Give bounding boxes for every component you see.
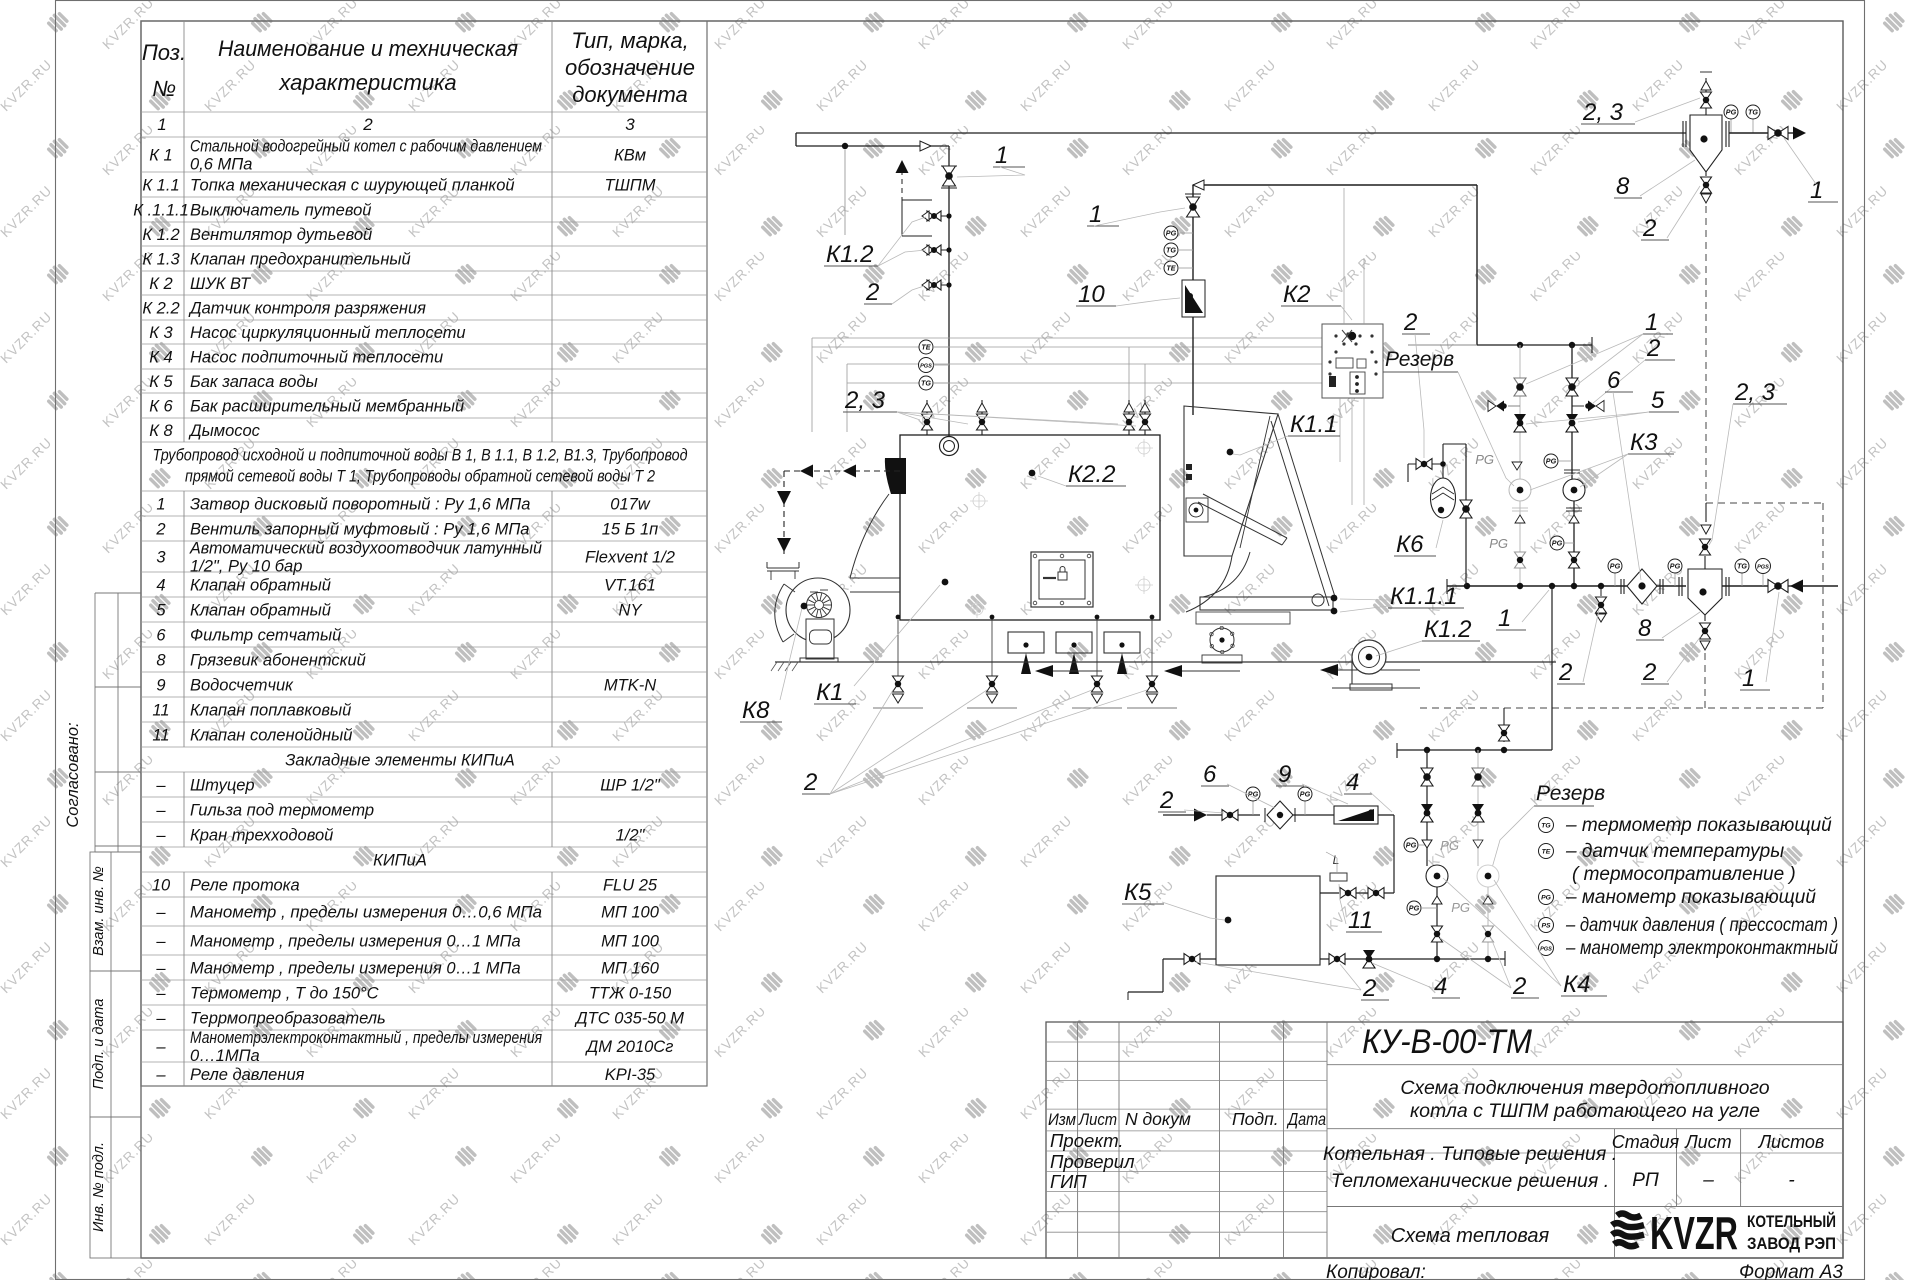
svg-text:PGS: PGS	[1540, 947, 1552, 953]
svg-text:Формат А3: Формат А3	[1739, 1262, 1843, 1280]
svg-text:Гильза под термометр: Гильза под термометр	[190, 802, 374, 820]
svg-text:Клапан поплавковый: Клапан поплавковый	[190, 702, 351, 720]
svg-text:К .1.1.1: К .1.1.1	[133, 202, 189, 220]
svg-text:– манометр показывающий: – манометр показывающий	[1565, 887, 1816, 908]
svg-text:Термометр , Т до 150°С: Термометр , Т до 150°С	[190, 985, 379, 1003]
svg-text:Клапан предохранительный: Клапан предохранительный	[190, 251, 411, 269]
svg-text:Клапан обратный: Клапан обратный	[190, 577, 331, 595]
svg-text:2: 2	[1362, 975, 1376, 1002]
svg-text:Резерв: Резерв	[1536, 782, 1605, 805]
svg-text:Затвор дисковый поворотный :: Затвор дисковый поворотный : Ру 1,6 МПа	[190, 496, 530, 514]
svg-text:ШР 1/2": ШР 1/2"	[600, 777, 661, 795]
svg-text:КУ-В-00-ТМ: КУ-В-00-ТМ	[1362, 1023, 1533, 1061]
svg-text:К 5: К 5	[149, 373, 173, 391]
svg-text:–: –	[155, 1010, 166, 1028]
svg-text:TE: TE	[1542, 849, 1551, 856]
svg-text:Дата: Дата	[1286, 1109, 1326, 1129]
svg-text:Манометр , пределы измерения: Манометр , пределы измерения 0…1 МПа	[190, 960, 521, 978]
svg-text:ГИП: ГИП	[1050, 1171, 1087, 1192]
svg-text:TG: TG	[1166, 246, 1176, 255]
svg-text:L: L	[1333, 853, 1340, 867]
svg-text:4: 4	[156, 577, 165, 595]
svg-text:Взам. инв. №: Взам. инв. №	[91, 866, 107, 956]
svg-text:PG: PG	[1440, 838, 1459, 853]
svg-text:Стадия: Стадия	[1612, 1132, 1680, 1152]
svg-text:8: 8	[156, 652, 166, 670]
svg-text:К1.1: К1.1	[1290, 411, 1338, 438]
svg-text:Flexvent 1/2: Flexvent 1/2	[585, 549, 675, 567]
svg-text:PG: PG	[1489, 536, 1508, 551]
svg-text:2: 2	[1642, 215, 1656, 242]
svg-text:PS: PS	[1541, 923, 1551, 930]
svg-text:N докум: N докум	[1125, 1109, 1191, 1129]
svg-text:11: 11	[152, 702, 169, 720]
svg-text:1: 1	[1089, 201, 1102, 228]
svg-text:Копировал:: Копировал:	[1326, 1262, 1426, 1280]
svg-text:Трубопровод исходной и подпито: Трубопровод исходной и подпиточной воды …	[153, 447, 688, 465]
svg-text:К1.1.1: К1.1.1	[1390, 583, 1458, 610]
svg-text:Вентиль запорный муфтовый : Р: Вентиль запорный муфтовый : Ру 1,6 МПа	[190, 521, 529, 539]
svg-text:Наименование и техническая: Наименование и техническая	[218, 36, 518, 61]
svg-text:10: 10	[152, 877, 171, 895]
svg-text:КИПиА: КИПиА	[373, 852, 427, 870]
svg-text:Кран трехходовой: Кран трехходовой	[190, 827, 333, 845]
svg-text:Фильтр сетчатый: Фильтр сетчатый	[190, 627, 341, 645]
svg-text:–: –	[155, 802, 166, 820]
svg-text:характеристика: характеристика	[278, 70, 456, 95]
svg-text:Дымосос: Дымосос	[188, 422, 261, 440]
svg-text:Тип, марка,: Тип, марка,	[571, 28, 689, 53]
svg-text:VT.161: VT.161	[604, 577, 656, 595]
svg-text:К 2: К 2	[149, 275, 173, 293]
svg-text:Выключатель путевой: Выключатель путевой	[190, 202, 371, 220]
svg-text:1/2": 1/2"	[616, 827, 646, 845]
svg-text:KVZR: KVZR	[1650, 1207, 1738, 1259]
svg-text:Схема подключения твердотоплив: Схема подключения твердотопливного	[1400, 1077, 1769, 1099]
svg-text:PG: PG	[1541, 895, 1552, 902]
svg-text:2: 2	[1558, 659, 1572, 686]
svg-text:2: 2	[362, 115, 373, 134]
svg-text:К 1.2: К 1.2	[142, 226, 179, 244]
svg-text:ДМ 2010Сг: ДМ 2010Сг	[585, 1038, 674, 1056]
svg-text:Клапан обратный: Клапан обратный	[190, 602, 331, 620]
svg-text:К3: К3	[1630, 429, 1658, 456]
svg-text:2: 2	[1512, 973, 1526, 1000]
svg-text:1: 1	[1498, 605, 1511, 632]
svg-text:Насос подпиточный теплосети: Насос подпиточный теплосети	[190, 349, 443, 367]
svg-text:Закладные элементы КИПиА: Закладные элементы КИПиА	[285, 752, 514, 770]
svg-text:Инв. № подл.: Инв. № подл.	[91, 1142, 107, 1232]
svg-text:Тепломеханические решения .: Тепломеханические решения .	[1331, 1170, 1609, 1192]
svg-text:4: 4	[1434, 973, 1447, 1000]
svg-text:МП 100: МП 100	[601, 904, 660, 922]
svg-text:1: 1	[1810, 177, 1823, 204]
svg-text:2: 2	[865, 279, 879, 306]
svg-text:Подп. и дата: Подп. и дата	[91, 999, 107, 1090]
svg-text:Лист: Лист	[1684, 1132, 1731, 1152]
svg-text:-: -	[1788, 1170, 1794, 1191]
svg-text:Схема тепловая: Схема тепловая	[1391, 1225, 1550, 1247]
svg-text:–: –	[155, 1038, 166, 1056]
svg-text:PG: PG	[1670, 562, 1681, 571]
svg-text:Вентилятор дутьевой: Вентилятор дутьевой	[190, 226, 372, 244]
svg-text:прямой сетевой воды Т 1, Тру: прямой сетевой воды Т 1, Трубопроводы об…	[185, 468, 655, 486]
svg-text:PG: PG	[1552, 539, 1563, 548]
svg-text:PG: PG	[1406, 841, 1417, 850]
svg-text:2, 3: 2, 3	[1734, 379, 1776, 406]
svg-text:1: 1	[1645, 309, 1658, 336]
svg-text:1: 1	[1742, 665, 1755, 692]
svg-text:Стальной водогрейный котел с р: Стальной водогрейный котел с рабочим дав…	[190, 138, 542, 156]
svg-text:Манометр , пределы измерения: Манометр , пределы измерения 0…1 МПа	[190, 933, 521, 951]
svg-text:К1.2: К1.2	[1424, 616, 1472, 643]
svg-text:– манометр электроконтактный: – манометр электроконтактный	[1565, 938, 1838, 959]
svg-text:0,6 МПа: 0,6 МПа	[190, 156, 252, 174]
svg-text:3: 3	[625, 115, 635, 134]
svg-text:4: 4	[1346, 769, 1359, 796]
svg-text:ТТЖ 0-150: ТТЖ 0-150	[589, 985, 672, 1003]
svg-text:МП 160: МП 160	[601, 960, 660, 978]
svg-text:Насос циркуляционный теплосети: Насос циркуляционный теплосети	[190, 324, 466, 342]
svg-text:5: 5	[156, 602, 166, 620]
svg-text:Штуцер: Штуцер	[190, 777, 255, 795]
svg-text:PG: PG	[1610, 562, 1621, 571]
svg-text:обозначение: обозначение	[565, 55, 695, 80]
svg-text:2, 3: 2, 3	[1582, 99, 1624, 126]
svg-text:PG: PG	[1451, 900, 1470, 915]
svg-text:Террмопреобразователь: Террмопреобразователь	[190, 1010, 386, 1028]
svg-text:К 3: К 3	[149, 324, 173, 342]
svg-text:К1.2: К1.2	[826, 241, 874, 268]
svg-text:Реле протока: Реле протока	[190, 877, 300, 895]
svg-text:К 2.2: К 2.2	[142, 300, 179, 318]
svg-text:Подп.: Подп.	[1232, 1109, 1279, 1129]
svg-text:Резерв: Резерв	[1385, 348, 1454, 371]
svg-text:К 6: К 6	[149, 398, 173, 416]
svg-text:Манометрэлектроконтактный , п: Манометрэлектроконтактный , пределы изме…	[190, 1029, 542, 1047]
svg-text:PG: PG	[1300, 790, 1311, 799]
svg-text:Лист: Лист	[1078, 1110, 1117, 1129]
svg-text:1: 1	[995, 142, 1008, 169]
svg-text:017w: 017w	[610, 496, 651, 514]
svg-text:К6: К6	[1396, 531, 1424, 558]
svg-text:–: –	[155, 985, 166, 1003]
svg-text:К1: К1	[816, 679, 844, 706]
svg-text:–: –	[155, 777, 166, 795]
svg-text:№: №	[152, 76, 176, 101]
svg-text:( термосопративление ): ( термосопративление )	[1572, 864, 1796, 885]
svg-text:9: 9	[156, 677, 165, 695]
svg-text:К4: К4	[1563, 971, 1591, 998]
svg-text:Бак расширительный мембранный: Бак расширительный мембранный	[190, 398, 464, 416]
svg-text:ТШПМ: ТШПМ	[605, 177, 656, 195]
svg-text:Проект.: Проект.	[1050, 1130, 1124, 1151]
svg-text:К2: К2	[1283, 281, 1311, 308]
svg-text:К2.2: К2.2	[1068, 461, 1116, 488]
svg-text:КОТЕЛЬНЫЙ: КОТЕЛЬНЫЙ	[1747, 1212, 1836, 1231]
svg-text:Манометр , пределы измерения: Манометр , пределы измерения 0…0,6 МПа	[190, 904, 542, 922]
svg-text:2: 2	[1646, 335, 1660, 362]
svg-text:ЗАВОД РЭП: ЗАВОД РЭП	[1747, 1235, 1836, 1253]
svg-text:FLU 25: FLU 25	[603, 877, 658, 895]
svg-text:1: 1	[157, 115, 166, 134]
svg-text:9: 9	[1278, 761, 1291, 788]
svg-text:TG: TG	[1748, 108, 1758, 117]
svg-text:TG: TG	[921, 379, 931, 388]
svg-text:Проверил: Проверил	[1050, 1151, 1135, 1172]
svg-text:РП: РП	[1632, 1170, 1659, 1191]
svg-text:К 1.1: К 1.1	[142, 177, 179, 195]
svg-text:3: 3	[156, 549, 166, 567]
svg-text:6: 6	[156, 627, 166, 645]
svg-text:–: –	[1702, 1170, 1714, 1191]
svg-text:–: –	[155, 1066, 166, 1084]
svg-text:1/2", Ру 10 бар: 1/2", Ру 10 бар	[190, 558, 302, 576]
svg-text:–: –	[155, 960, 166, 978]
svg-text:К 1: К 1	[149, 147, 173, 165]
svg-text:К8: К8	[742, 697, 770, 724]
svg-text:Клапан соленойдный: Клапан соленойдный	[190, 727, 352, 745]
svg-text:– датчик давления ( прессост: – датчик давления ( прессостат )	[1565, 915, 1838, 936]
svg-text:PG: PG	[1726, 108, 1737, 117]
svg-text:К 1.3: К 1.3	[142, 251, 180, 269]
svg-text:0…1МПа: 0…1МПа	[190, 1047, 260, 1065]
svg-text:NY: NY	[619, 602, 643, 620]
svg-text:8: 8	[1638, 615, 1652, 642]
svg-text:Автоматический воздухоотводчи: Автоматический воздухоотводчик латунный	[189, 540, 542, 558]
svg-text:Поз.: Поз.	[142, 40, 186, 65]
svg-text:Листов: Листов	[1758, 1132, 1825, 1152]
svg-text:2: 2	[1642, 659, 1656, 686]
svg-text:К 8: К 8	[149, 422, 173, 440]
svg-text:2, 3: 2, 3	[844, 387, 886, 414]
svg-text:2: 2	[155, 521, 165, 539]
svg-text:–: –	[155, 827, 166, 845]
svg-text:– термометр показывающий: – термометр показывающий	[1565, 815, 1832, 836]
svg-text:–: –	[155, 904, 166, 922]
svg-text:Водосчетчик: Водосчетчик	[190, 677, 294, 695]
svg-text:8: 8	[1616, 173, 1630, 200]
svg-text:TE: TE	[921, 343, 930, 352]
svg-text:К 4: К 4	[149, 349, 173, 367]
svg-text:Изм: Изм	[1048, 1110, 1076, 1129]
svg-text:PG: PG	[1546, 457, 1557, 466]
svg-text:К5: К5	[1124, 879, 1152, 906]
svg-text:2: 2	[1159, 787, 1173, 814]
svg-text:TG: TG	[1737, 562, 1747, 571]
svg-text:PG: PG	[1166, 229, 1177, 238]
svg-text:Согласовано:: Согласовано:	[64, 722, 82, 827]
svg-text:11: 11	[1348, 907, 1373, 934]
svg-text:11: 11	[152, 727, 169, 745]
svg-text:6: 6	[1607, 367, 1621, 394]
svg-text:ДТС 035-50 М: ДТС 035-50 М	[574, 1010, 684, 1028]
svg-text:Грязевик абонентский: Грязевик абонентский	[190, 652, 366, 670]
svg-text:5: 5	[1651, 387, 1665, 414]
svg-text:TE: TE	[1166, 264, 1175, 273]
svg-text:Реле давления: Реле давления	[190, 1066, 305, 1084]
svg-text:TG: TG	[1541, 823, 1551, 830]
svg-text:Топка механическая с шурующей: Топка механическая с шурующей планкой	[190, 177, 515, 195]
svg-text:6: 6	[1203, 761, 1217, 788]
svg-text:котла с ТШПМ работающего на уг: котла с ТШПМ работающего на угле	[1410, 1100, 1760, 1122]
svg-text:2: 2	[803, 769, 817, 796]
svg-text:2: 2	[1403, 309, 1417, 336]
svg-text:документа: документа	[572, 82, 688, 107]
svg-text:KPI-35: KPI-35	[605, 1066, 656, 1084]
svg-text:МП 100: МП 100	[601, 933, 660, 951]
svg-text:PG: PG	[1409, 904, 1420, 913]
svg-text:– датчик температуры: – датчик температуры	[1565, 841, 1784, 862]
svg-text:10: 10	[1078, 281, 1105, 308]
svg-text:Бак запаса воды: Бак запаса воды	[190, 373, 318, 391]
svg-text:PG: PG	[1475, 452, 1494, 467]
svg-text:КВм: КВм	[614, 147, 646, 165]
svg-text:PGS: PGS	[920, 364, 932, 370]
svg-text:1: 1	[156, 496, 165, 514]
svg-text:ШУК ВТ: ШУК ВТ	[190, 275, 252, 293]
svg-text:15 Б 1п: 15 Б 1п	[602, 521, 659, 539]
svg-text:PGS: PGS	[1757, 565, 1769, 571]
svg-text:–: –	[155, 933, 166, 951]
svg-text:MTK-N: MTK-N	[604, 677, 656, 695]
svg-text:Котельная . Типовые решения .: Котельная . Типовые решения .	[1323, 1143, 1617, 1165]
svg-text:Датчик контроля разряжения: Датчик контроля разряжения	[188, 300, 426, 318]
